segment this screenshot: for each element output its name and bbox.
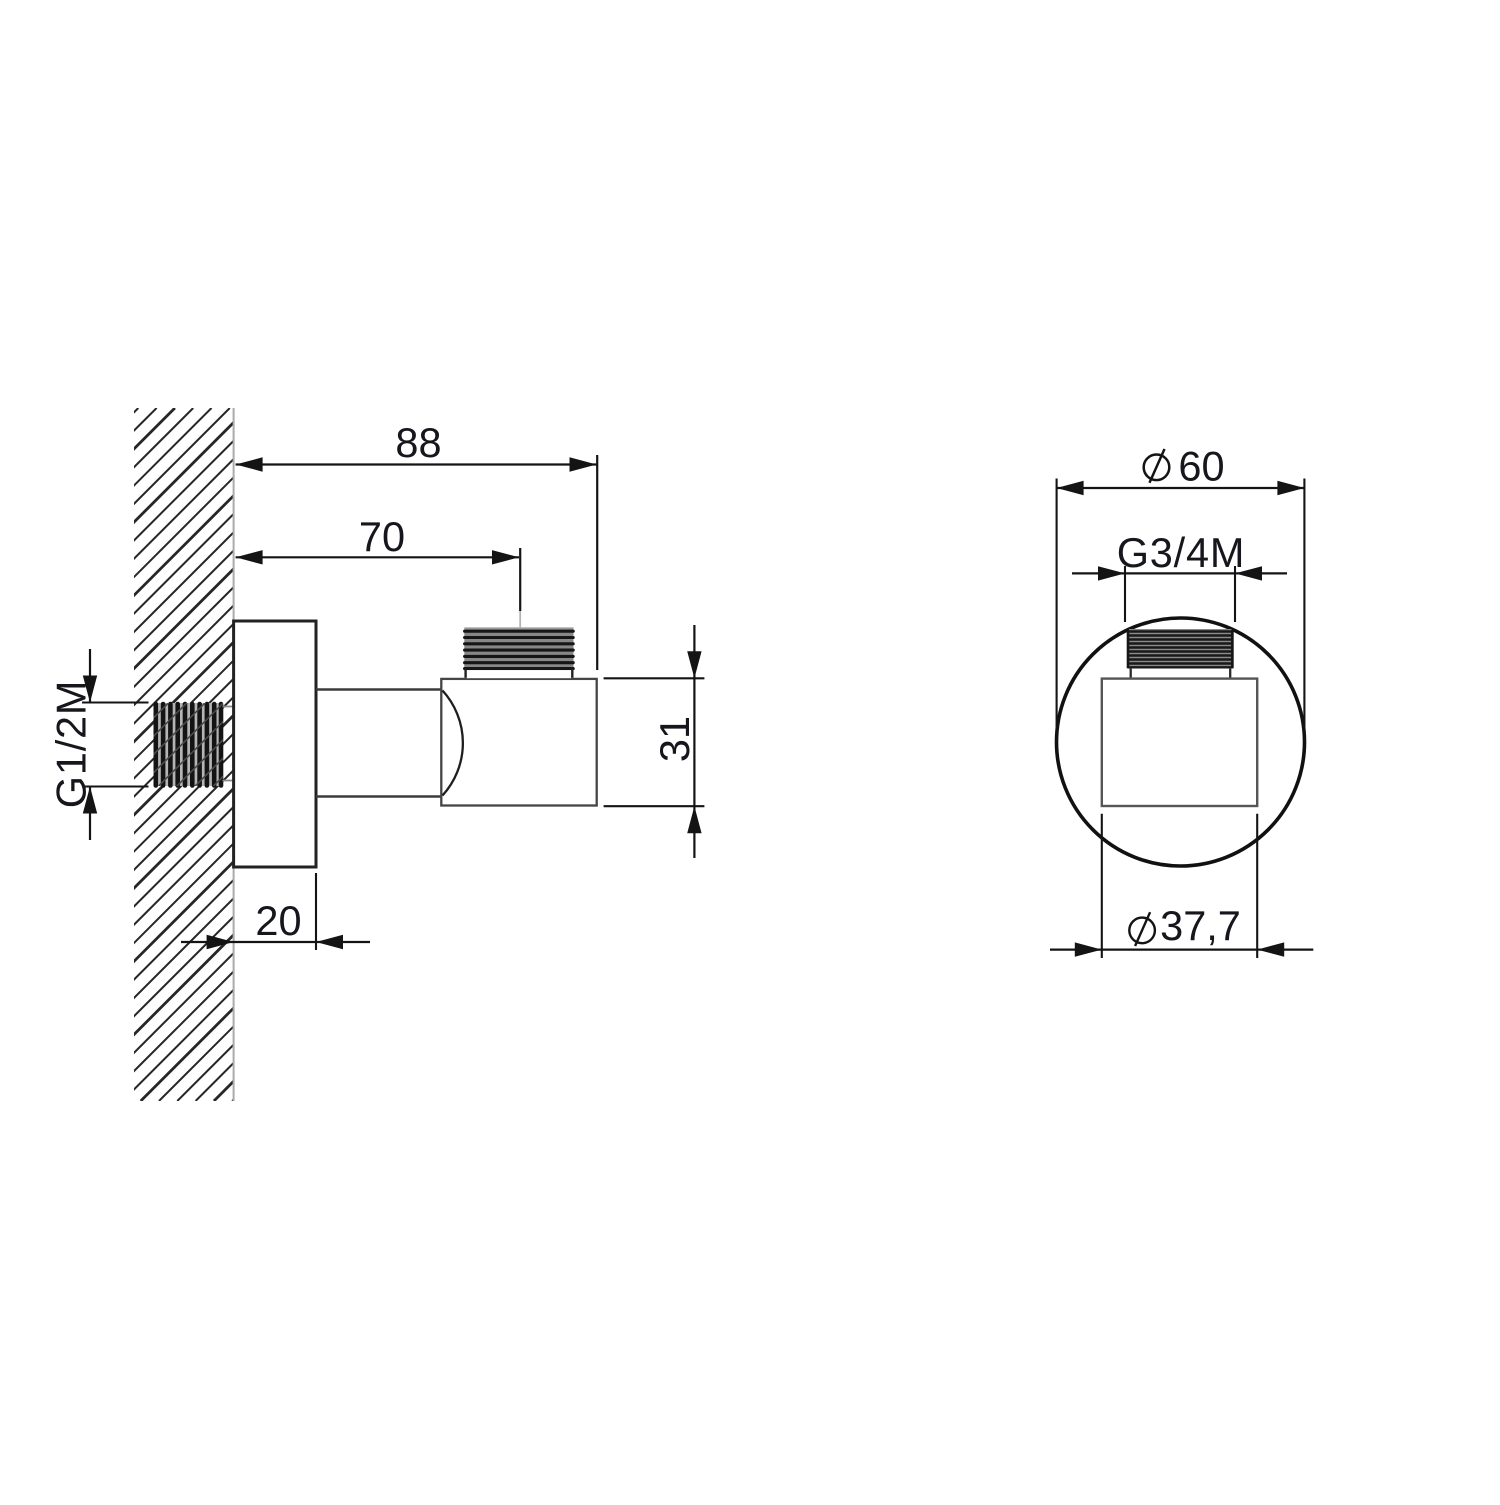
svg-text:37,7: 37,7 <box>1160 902 1241 949</box>
svg-text:G1/2M: G1/2M <box>48 680 95 809</box>
svg-text:31: 31 <box>651 716 698 762</box>
svg-text:60: 60 <box>1178 443 1224 490</box>
svg-text:88: 88 <box>395 419 441 466</box>
svg-text:G3/4M: G3/4M <box>1117 529 1246 576</box>
svg-text:20: 20 <box>255 897 301 944</box>
svg-text:70: 70 <box>359 513 405 560</box>
